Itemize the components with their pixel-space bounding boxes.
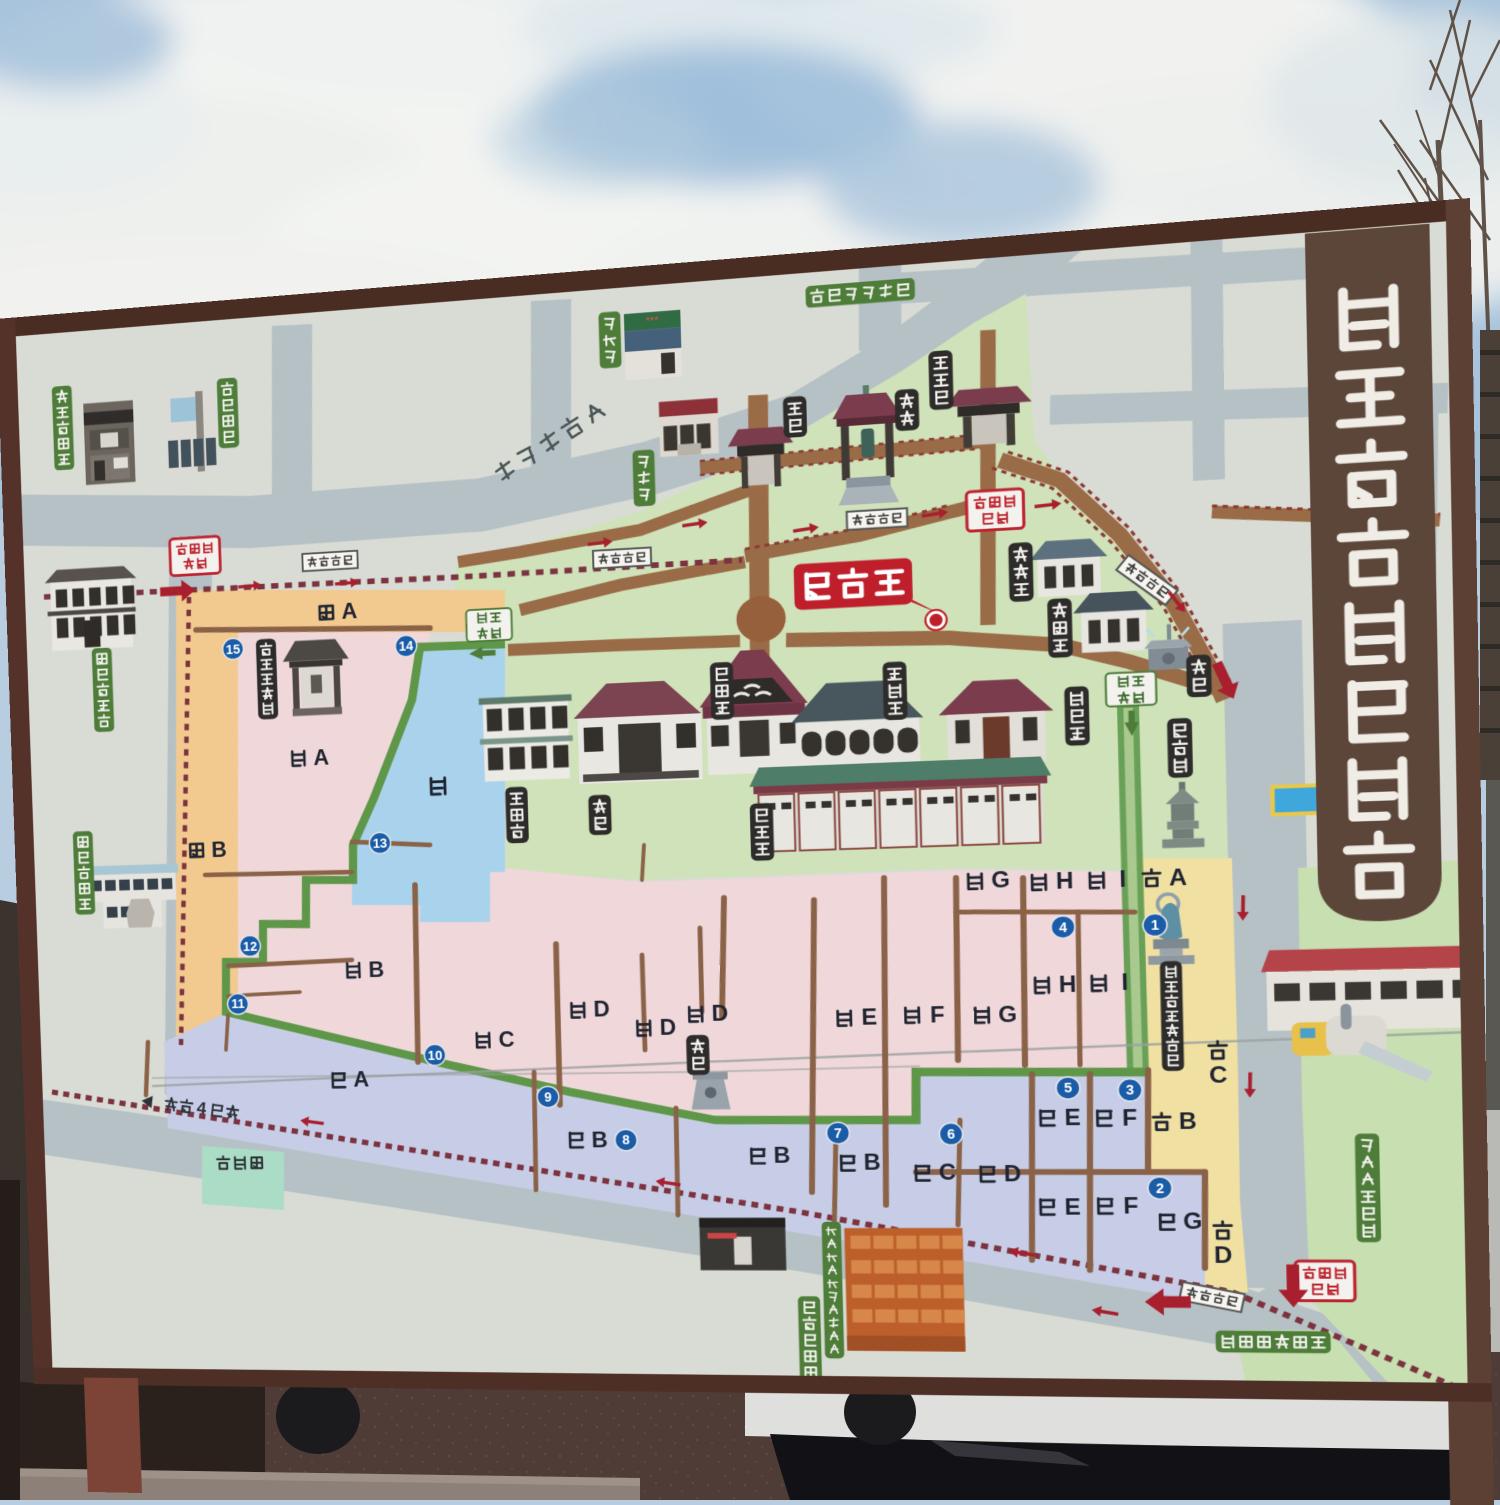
svg-text:D: D xyxy=(711,1002,728,1027)
svg-text:B: B xyxy=(368,958,384,982)
svg-text:D: D xyxy=(1004,1162,1022,1187)
svg-text:7: 7 xyxy=(834,1126,842,1141)
svg-text:F: F xyxy=(1122,1105,1138,1130)
svg-text:E: E xyxy=(861,1006,877,1031)
svg-text:***: *** xyxy=(646,315,659,328)
svg-text:C: C xyxy=(938,1161,956,1186)
svg-text:A: A xyxy=(341,599,357,624)
svg-text:A: A xyxy=(1169,865,1187,891)
svg-text:11: 11 xyxy=(231,997,245,1011)
svg-text:4: 4 xyxy=(1059,920,1067,935)
svg-text:D: D xyxy=(1214,1242,1233,1268)
svg-text:10: 10 xyxy=(428,1048,443,1063)
svg-text:G: G xyxy=(991,868,1010,893)
svg-text:2: 2 xyxy=(1156,1181,1165,1196)
svg-text:8: 8 xyxy=(622,1133,630,1148)
svg-text:12: 12 xyxy=(243,939,258,954)
svg-text:F: F xyxy=(930,1003,945,1028)
svg-text:B: B xyxy=(1179,1109,1197,1134)
svg-text:I: I xyxy=(1119,867,1126,892)
svg-text:B: B xyxy=(773,1144,790,1168)
svg-text:6: 6 xyxy=(947,1127,955,1142)
svg-text:B: B xyxy=(591,1128,608,1152)
svg-text:C: C xyxy=(1209,1062,1228,1089)
svg-text:G: G xyxy=(998,1002,1017,1027)
svg-text:E: E xyxy=(1064,1195,1081,1220)
svg-text:A: A xyxy=(313,746,329,770)
svg-text:I: I xyxy=(1121,970,1128,995)
svg-text:F: F xyxy=(1123,1194,1139,1219)
svg-text:D: D xyxy=(659,1016,676,1040)
svg-text:1: 1 xyxy=(1151,918,1160,934)
svg-text:5: 5 xyxy=(1064,1081,1072,1096)
svg-text:D: D xyxy=(593,998,610,1022)
svg-text:E: E xyxy=(1064,1106,1081,1131)
svg-text:13: 13 xyxy=(373,836,388,851)
svg-text:H: H xyxy=(1059,972,1077,997)
svg-text:A: A xyxy=(353,1068,369,1092)
svg-text:3: 3 xyxy=(1126,1083,1135,1098)
svg-text:B: B xyxy=(211,838,227,862)
svg-text:G: G xyxy=(1183,1210,1203,1235)
svg-text:14: 14 xyxy=(399,639,414,654)
svg-text:9: 9 xyxy=(544,1090,552,1105)
svg-text:B: B xyxy=(863,1151,881,1176)
svg-text:15: 15 xyxy=(226,642,241,657)
svg-text:C: C xyxy=(498,1028,515,1052)
svg-text:H: H xyxy=(1056,869,1074,895)
